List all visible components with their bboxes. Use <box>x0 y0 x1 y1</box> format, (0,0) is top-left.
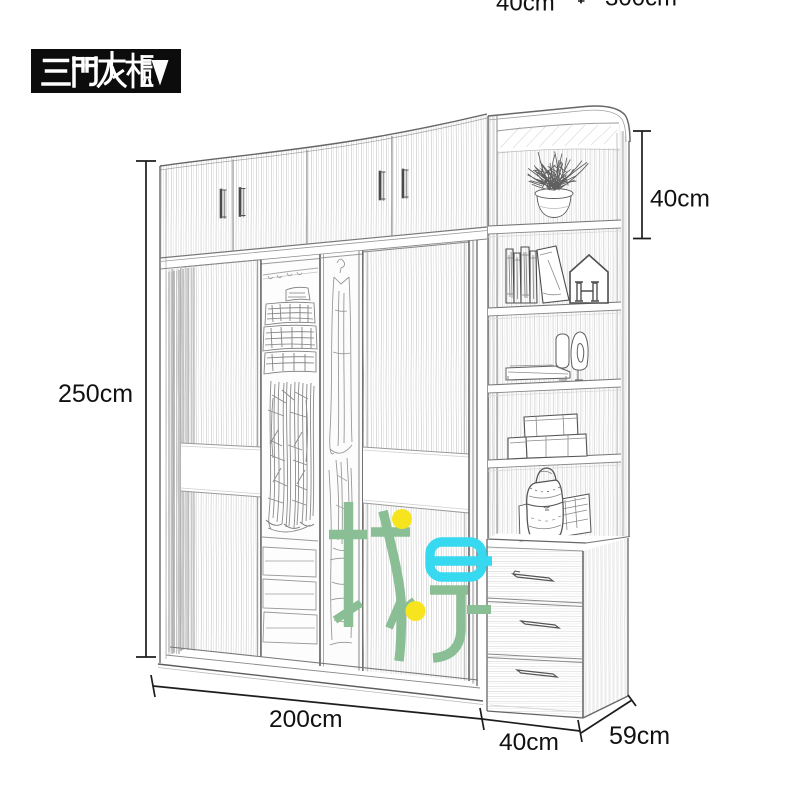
svg-text:200cm: 200cm <box>269 706 343 733</box>
svg-text:250cm: 250cm <box>58 380 133 408</box>
svg-text:40cm: 40cm <box>650 186 710 213</box>
svg-text:40cm: 40cm <box>496 0 555 17</box>
svg-text:59cm: 59cm <box>609 722 670 750</box>
svg-text:40cm: 40cm <box>499 729 559 756</box>
svg-text:300cm: 300cm <box>605 0 677 12</box>
